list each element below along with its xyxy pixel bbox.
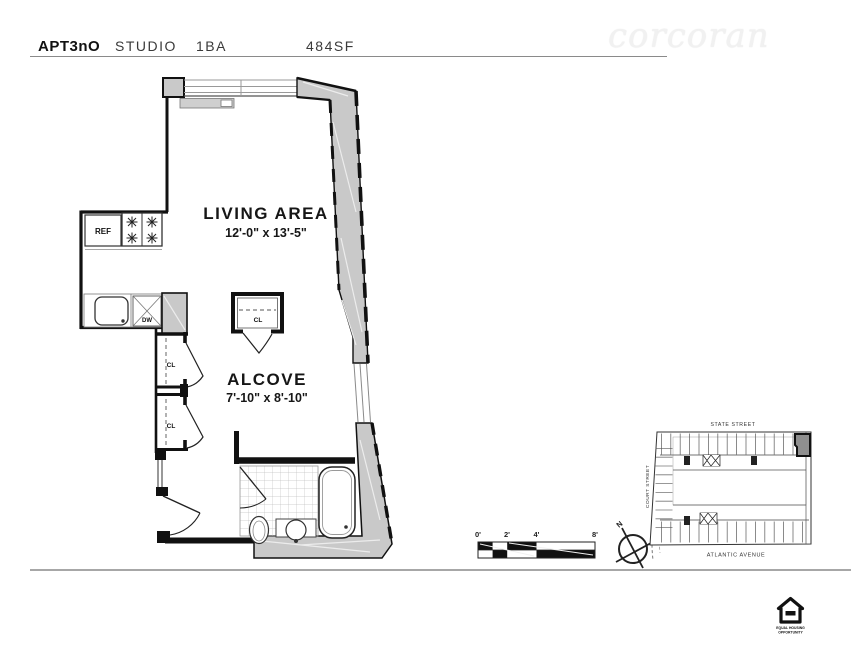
kitchen: REF bbox=[80, 211, 187, 335]
closet-label: CL bbox=[167, 362, 176, 369]
scale-tick-2: 2' bbox=[504, 530, 510, 539]
floor-plan-drawing: REF bbox=[0, 0, 854, 660]
court-street-label: COURT STREET bbox=[645, 465, 651, 508]
floorplan-page: { "header": { "apt": "APT3nO", "type": "… bbox=[0, 0, 854, 660]
state-street-label: STATE STREET bbox=[710, 422, 755, 428]
equal-housing-caption-2: OPPORTUNITY bbox=[778, 631, 803, 635]
site-key-map: STATE STREET COURT STREET ATLANTIC AVENU… bbox=[645, 422, 811, 559]
entry-door-leaf bbox=[163, 496, 200, 513]
scale-tick-4: 4' bbox=[534, 530, 540, 539]
east-window-band bbox=[354, 364, 371, 422]
alcove-label: ALCOVE bbox=[227, 370, 307, 389]
unit-floor-plan: REF bbox=[80, 78, 392, 558]
closet-label: CL bbox=[254, 317, 263, 324]
west-closets: CL CL bbox=[155, 329, 203, 453]
north-window-wall bbox=[163, 78, 297, 108]
bathtub bbox=[319, 467, 355, 538]
entry-door-swing bbox=[170, 513, 200, 535]
closet-door-swing bbox=[243, 333, 272, 353]
kitchen-sink bbox=[95, 297, 128, 325]
living-area-dimensions: 12'-0" x 13'-5" bbox=[225, 226, 307, 240]
house-icon bbox=[779, 599, 803, 623]
center-closet: CL bbox=[231, 294, 284, 353]
closet-door-swing bbox=[186, 343, 203, 387]
scale-tick-0: 0' bbox=[475, 530, 481, 539]
stove bbox=[122, 213, 162, 246]
atlantic-avenue-label: ATLANTIC AVENUE bbox=[707, 553, 766, 559]
equal-housing-caption-1: EQUAL HOUSING bbox=[776, 626, 805, 630]
refrigerator-label: REF bbox=[95, 227, 111, 236]
closet-label: CL bbox=[167, 423, 176, 430]
toilet bbox=[250, 517, 269, 544]
equal-housing-logo: EQUAL HOUSING OPPORTUNITY bbox=[776, 599, 805, 635]
scale-bar: 0' 2' 4' 8' bbox=[475, 530, 598, 558]
dishwasher: DW bbox=[133, 296, 161, 326]
dishwasher-label: DW bbox=[142, 318, 152, 324]
scale-tick-8: 8' bbox=[592, 530, 598, 539]
bathroom bbox=[234, 423, 392, 558]
closet-door-swing bbox=[186, 405, 203, 448]
wall-block bbox=[162, 293, 187, 334]
living-area-label: LIVING AREA bbox=[203, 204, 328, 223]
alcove-dimensions: 7'-10" x 8'-10" bbox=[226, 391, 308, 405]
highlighted-unit bbox=[795, 434, 810, 456]
building-outline bbox=[650, 432, 811, 545]
